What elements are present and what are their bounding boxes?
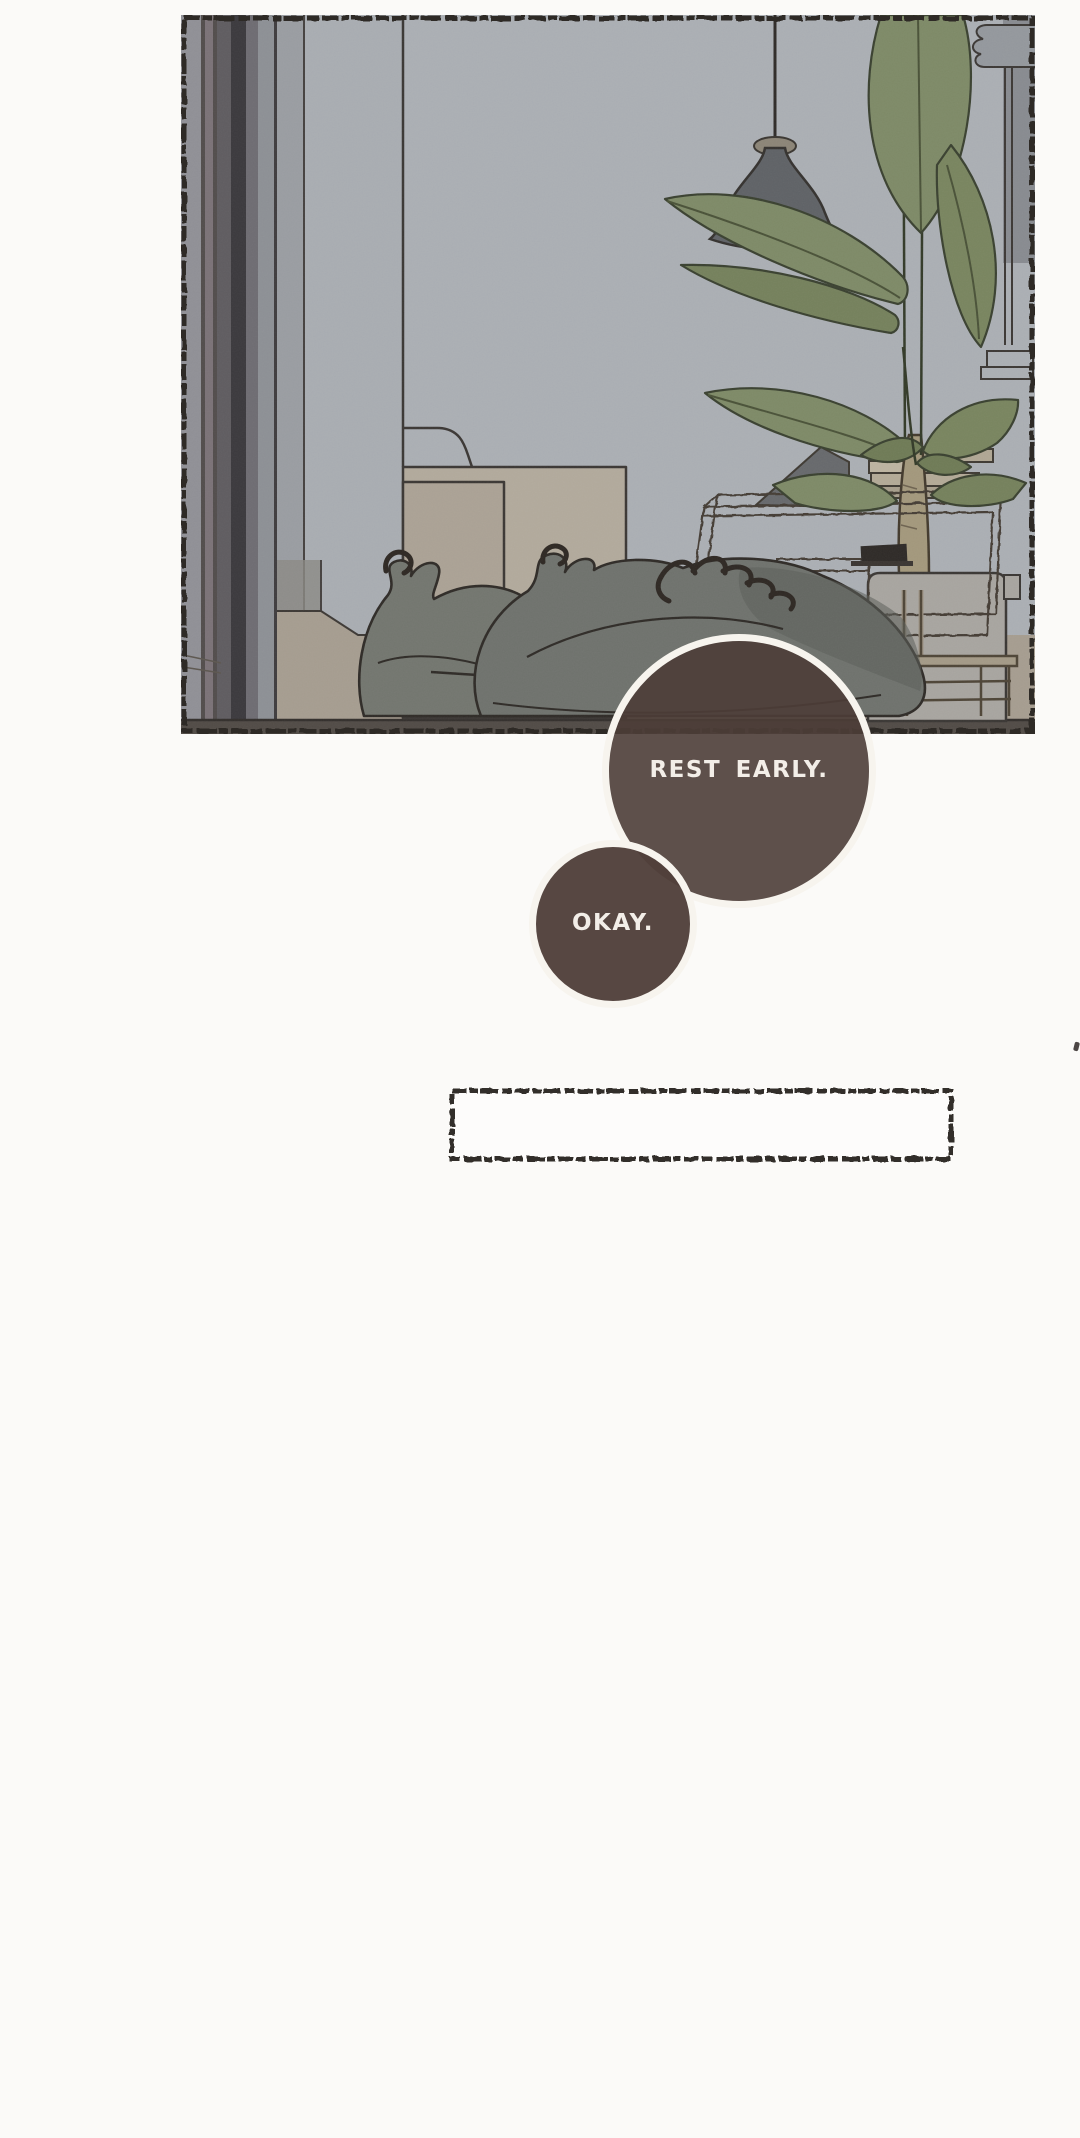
caption-box-border <box>452 1091 951 1159</box>
speech-bubble-text: OKAY. <box>572 911 654 936</box>
page-edge-mark <box>1073 1042 1080 1052</box>
paper-grain-overlay <box>181 15 1035 734</box>
speech-bubble-text: REST EARLY. <box>649 758 828 783</box>
comic-panel-artwork <box>181 15 1035 734</box>
panel-scene <box>181 15 1035 734</box>
empty-caption-box <box>448 1087 955 1163</box>
speech-bubble-okay: OKAY. <box>529 840 697 1008</box>
webtoon-page: REST EARLY. OKAY. <box>0 0 1080 2138</box>
